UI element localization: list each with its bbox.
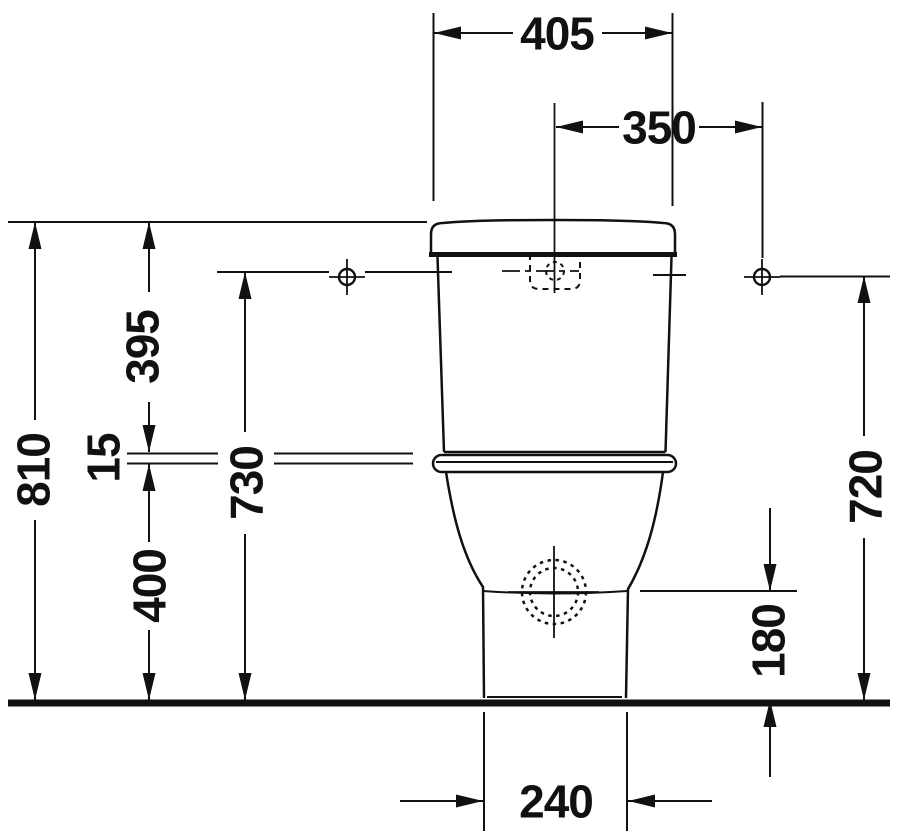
dim-label-overall-width: 405 (520, 8, 594, 60)
joint-collar (433, 455, 676, 472)
dim-label-fixing-hole-height: 720 (840, 450, 892, 524)
dimension-lines (29, 27, 871, 808)
arrowhead-730-top (239, 272, 252, 299)
technical-drawing-canvas: 405 350 240 810 395 15 400 730 720 180 (0, 0, 897, 838)
arrowhead-400-bottom (143, 673, 156, 700)
toilet-outline (429, 220, 677, 698)
dim-label-tank-top-to-joint: 395 (117, 310, 169, 384)
arrowhead-395-top (143, 222, 156, 249)
arrowhead-240-right (628, 795, 655, 808)
arrowhead-730-bottom (239, 673, 252, 700)
arrowhead-350-right (735, 121, 762, 134)
toilet-front-elevation-drawing: 405 350 240 810 395 15 400 730 720 180 (0, 0, 897, 838)
dim-label-outlet-height: 180 (743, 604, 795, 678)
cistern-left-edge (438, 257, 445, 452)
dim-label-pedestal-width: 240 (519, 776, 593, 828)
fixing-hole-left (329, 259, 365, 295)
arrowhead-180-top (764, 564, 777, 591)
bowl-left-outline (446, 472, 484, 698)
arrowhead-720-bottom (858, 673, 871, 700)
arrowhead-240-left (456, 795, 483, 808)
reference-lines (8, 13, 890, 831)
arrowhead-720-top (858, 276, 871, 303)
arrowhead-810-bottom (29, 673, 42, 700)
dim-label-fixing-hole-spacing: 350 (622, 102, 696, 154)
arrowhead-395-bottom (143, 425, 156, 452)
dim-label-joint-to-floor: 400 (124, 549, 176, 623)
arrowhead-405-right (645, 27, 672, 40)
dim-label-fixing-line-to-floor: 730 (221, 446, 273, 520)
dim-label-overall-height: 810 (8, 433, 60, 507)
cistern-right-edge (666, 257, 672, 452)
fixing-hole-right (744, 259, 780, 295)
arrowhead-810-top (29, 222, 42, 249)
arrowhead-400-top (143, 464, 156, 491)
arrowhead-350-left (556, 121, 583, 134)
arrowhead-405-left (434, 27, 461, 40)
dim-label-joint-gap: 15 (78, 433, 130, 483)
cistern-lid-outline (431, 220, 675, 253)
bowl-right-outline (626, 472, 663, 698)
